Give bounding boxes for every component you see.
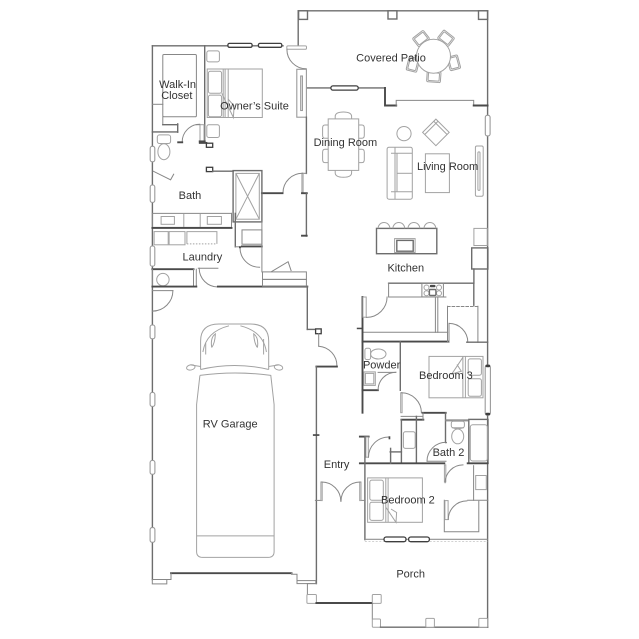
svg-text:Living Room: Living Room bbox=[417, 161, 478, 173]
svg-text:Owner’s Suite: Owner’s Suite bbox=[220, 101, 289, 113]
svg-text:Bedroom 3: Bedroom 3 bbox=[419, 370, 473, 382]
svg-text:Walk-In: Walk-In bbox=[159, 79, 196, 91]
svg-text:Porch: Porch bbox=[396, 569, 425, 581]
svg-text:Closet: Closet bbox=[161, 90, 192, 102]
svg-text:Bedroom 2: Bedroom 2 bbox=[381, 495, 435, 507]
svg-text:Covered Patio: Covered Patio bbox=[356, 53, 426, 65]
svg-text:RV Garage: RV Garage bbox=[203, 418, 258, 430]
svg-text:Dining Room: Dining Room bbox=[314, 137, 378, 149]
svg-text:Entry: Entry bbox=[324, 459, 350, 471]
svg-text:Bath: Bath bbox=[179, 190, 202, 202]
svg-text:Powder: Powder bbox=[363, 360, 401, 372]
svg-text:Kitchen: Kitchen bbox=[387, 262, 424, 274]
svg-text:Bath 2: Bath 2 bbox=[433, 447, 465, 459]
svg-text:Laundry: Laundry bbox=[183, 252, 223, 264]
